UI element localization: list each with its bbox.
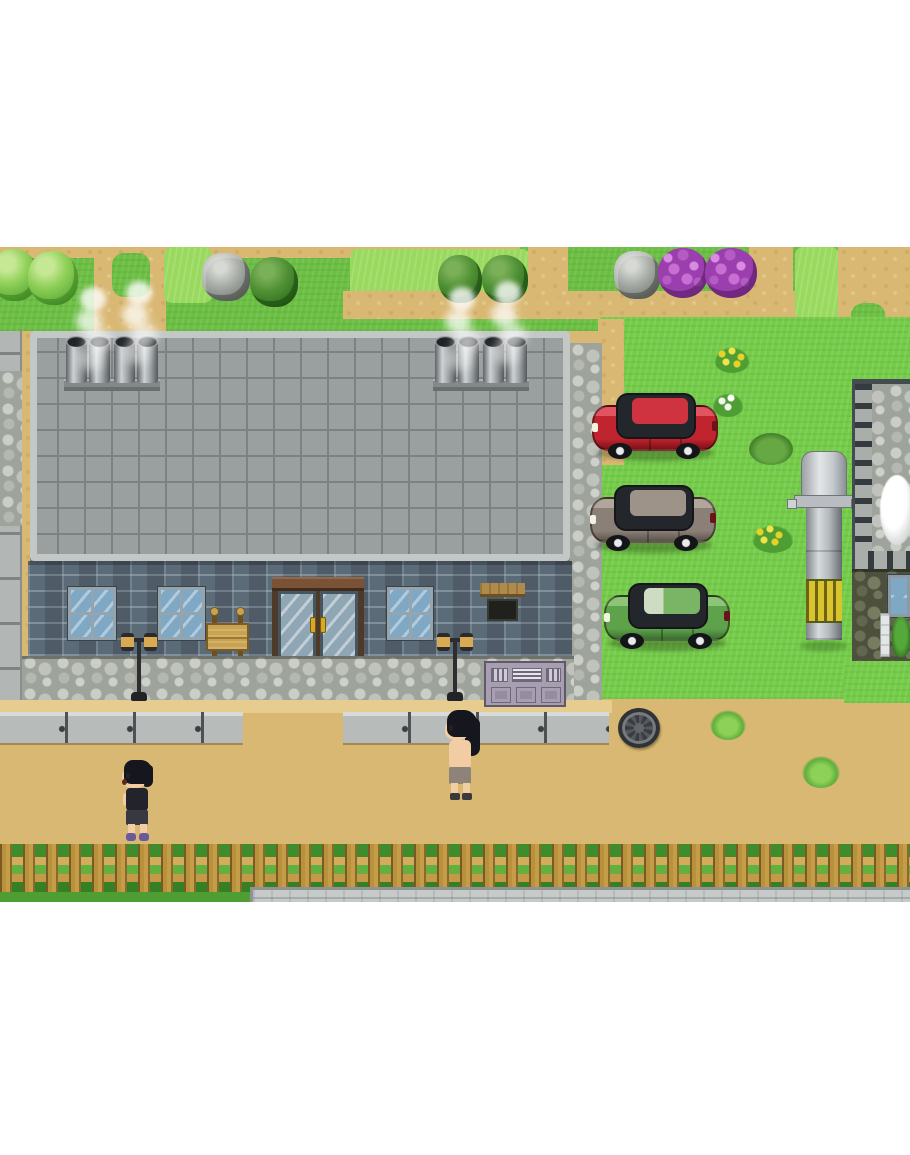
car-wheel bbox=[608, 443, 632, 459]
grass-below-fence bbox=[0, 892, 254, 902]
door-handle bbox=[320, 617, 326, 633]
car-windows bbox=[616, 393, 696, 439]
wooden-sign[interactable] bbox=[204, 607, 251, 659]
purple-flower-bush-icon bbox=[658, 248, 708, 298]
sidewalk-segment bbox=[0, 712, 243, 743]
npc-shoe bbox=[462, 793, 472, 800]
npc-hair bbox=[124, 760, 152, 784]
grass-tuft-icon bbox=[802, 756, 840, 788]
plant-icon bbox=[892, 617, 910, 657]
lamp-base bbox=[447, 692, 463, 701]
grass-strip bbox=[844, 661, 910, 703]
car-headlight bbox=[590, 515, 596, 524]
vent-panel bbox=[516, 687, 536, 703]
car-gray[interactable] bbox=[590, 485, 716, 555]
right-building-wall bbox=[852, 569, 910, 661]
chimney-stack bbox=[483, 341, 504, 383]
white-dome-icon bbox=[880, 475, 910, 545]
car-headlight bbox=[604, 613, 610, 622]
smoke-plume-icon bbox=[495, 281, 521, 305]
small-bush-icon bbox=[749, 433, 793, 465]
chimney-stack bbox=[114, 341, 135, 383]
yellow-flowers-icon bbox=[714, 347, 750, 373]
left-wall-cobble bbox=[0, 371, 22, 526]
lamp-lantern-icon bbox=[460, 633, 473, 651]
npc-shorts bbox=[449, 767, 471, 784]
car-headlight bbox=[592, 423, 598, 432]
chimney-pair bbox=[64, 335, 112, 391]
car-wheel bbox=[676, 443, 700, 459]
door-header bbox=[272, 577, 364, 591]
silo-yellow-band bbox=[806, 579, 842, 623]
npc-mouth bbox=[122, 779, 127, 785]
car-red[interactable] bbox=[592, 393, 718, 463]
building-window bbox=[68, 587, 116, 640]
tree-icon bbox=[28, 251, 78, 305]
door-handle bbox=[310, 617, 316, 633]
lamp-pole bbox=[453, 640, 457, 694]
smoke-plume-icon bbox=[449, 287, 475, 311]
vent-unit bbox=[484, 661, 566, 707]
screenshot-canvas bbox=[0, 0, 910, 1155]
wood-awning bbox=[480, 583, 525, 597]
drainpipe bbox=[880, 613, 890, 657]
manhole-cover[interactable] bbox=[618, 708, 660, 748]
street-lamp bbox=[120, 631, 158, 703]
rock-pile-icon bbox=[202, 253, 250, 301]
purple-flower-bush-icon bbox=[705, 248, 757, 298]
grass-tuft-icon bbox=[710, 710, 746, 740]
left-edge-wall bbox=[0, 331, 22, 712]
street-lamp bbox=[436, 631, 474, 703]
silo-dome bbox=[801, 451, 847, 499]
dirt-path-vertical-2 bbox=[528, 247, 568, 297]
building-window bbox=[158, 587, 205, 640]
building-window bbox=[888, 575, 910, 617]
chimney-stack bbox=[435, 341, 456, 383]
car-wheel bbox=[606, 535, 630, 551]
lamp-base bbox=[131, 692, 147, 701]
concrete-pad bbox=[250, 887, 910, 902]
vent-grille bbox=[546, 668, 561, 682]
chimney-stack bbox=[506, 341, 527, 383]
letterbox-top bbox=[0, 0, 910, 247]
yellow-flowers-icon bbox=[752, 525, 794, 553]
light-grass-strip bbox=[795, 247, 839, 319]
rock-pile-icon bbox=[614, 251, 660, 299]
npc-villager-center[interactable] bbox=[440, 710, 484, 802]
game-viewport bbox=[0, 247, 910, 902]
car-wheel bbox=[620, 633, 644, 649]
npc-shirt bbox=[126, 788, 148, 811]
npc-villager-left[interactable] bbox=[114, 760, 160, 842]
car-taillight bbox=[724, 611, 730, 621]
window-opening bbox=[487, 599, 518, 621]
vent-panel bbox=[541, 687, 561, 703]
car-windows bbox=[628, 583, 708, 629]
lamp-lantern-icon bbox=[144, 633, 157, 651]
car-roof bbox=[644, 588, 700, 614]
car-taillight bbox=[712, 421, 718, 431]
car-windows bbox=[614, 485, 694, 531]
silo-shadow bbox=[800, 641, 848, 651]
silo-tower bbox=[792, 449, 856, 655]
chimney-stack bbox=[89, 341, 110, 383]
npc-eye bbox=[126, 773, 130, 779]
lamp-lantern-icon bbox=[121, 633, 134, 651]
sign-board bbox=[206, 623, 249, 651]
vent-slats bbox=[512, 668, 542, 682]
chimney-stack bbox=[458, 341, 479, 383]
npc-eye bbox=[449, 725, 453, 731]
sign-finial bbox=[210, 607, 219, 616]
npc-shoe bbox=[126, 833, 136, 841]
npc-hair bbox=[447, 710, 477, 737]
lamp-lantern-icon bbox=[437, 633, 450, 651]
awning-window bbox=[480, 583, 525, 625]
car-wheel bbox=[688, 633, 712, 649]
npc-shoe bbox=[450, 793, 460, 800]
npc-shorts bbox=[126, 810, 148, 825]
chimney-pair bbox=[112, 335, 160, 391]
silo-collar bbox=[794, 495, 854, 508]
car-roof bbox=[630, 490, 686, 516]
letterbox-bottom bbox=[0, 902, 910, 1155]
glass-double-door[interactable] bbox=[272, 577, 364, 661]
smoke-plume-icon bbox=[80, 287, 106, 311]
car-taillight bbox=[710, 513, 716, 523]
smoke-plume-icon bbox=[126, 281, 152, 305]
chimney-pair bbox=[433, 335, 481, 391]
building-window bbox=[387, 587, 433, 640]
chimney-stack bbox=[66, 341, 87, 383]
lamp-pole bbox=[137, 640, 141, 694]
tree-icon bbox=[250, 257, 298, 307]
chimney-pair bbox=[481, 335, 529, 391]
vent-panel bbox=[491, 687, 511, 703]
car-roof bbox=[632, 398, 688, 424]
npc-torso bbox=[449, 740, 471, 769]
vent-grille bbox=[491, 668, 508, 682]
car-wheel bbox=[674, 535, 698, 551]
npc-shoe bbox=[139, 833, 149, 841]
chimney-stack bbox=[137, 341, 158, 383]
sign-finial bbox=[236, 607, 245, 616]
car-green[interactable] bbox=[604, 583, 730, 653]
